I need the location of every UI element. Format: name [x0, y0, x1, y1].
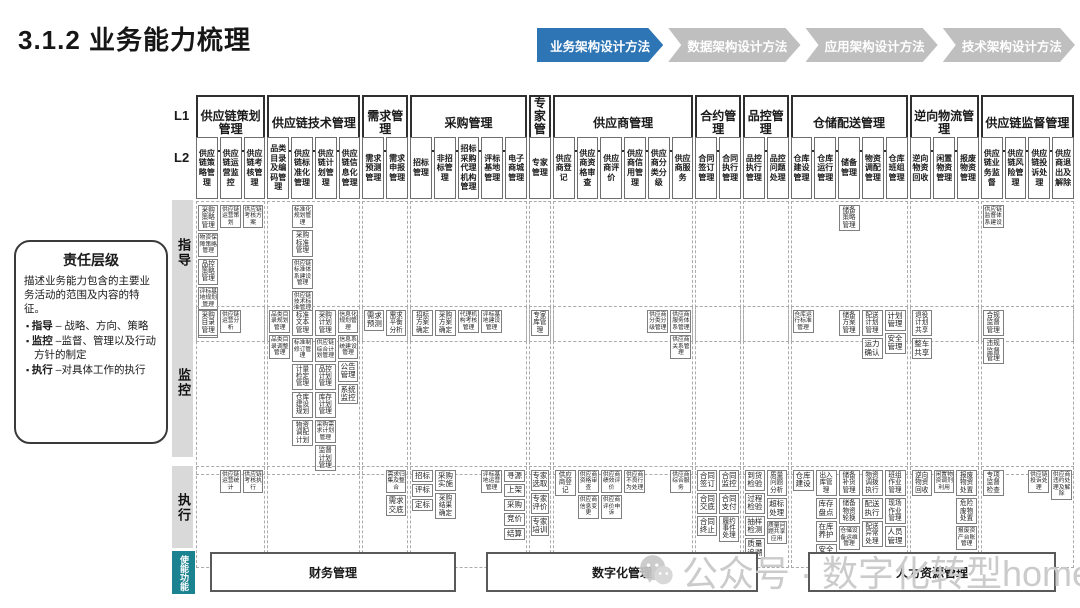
- l2-capability: 仓库建设管理: [791, 137, 813, 199]
- capability-stack: 评标基地建设管理: [481, 310, 502, 333]
- capability-cell: 上架: [504, 484, 525, 496]
- l2-capability: 品控问题处理: [767, 137, 789, 199]
- capability-stack: 退役计划共享整车共享: [912, 310, 932, 359]
- capability-cell: 采购结果确定: [435, 493, 456, 519]
- band-group-area: 合规监督管理违规监督管理: [981, 306, 1074, 475]
- capability-cell: 专家评价: [531, 493, 549, 514]
- l2-capability: 供应链信息化管理: [339, 137, 361, 199]
- capability-cell: 计量检定管理: [292, 364, 313, 390]
- capability-cell: 运力确认: [862, 338, 883, 359]
- capability-cell: 供应商绩效评价: [601, 470, 622, 493]
- capability-stack: 采购实施采购结果确定: [435, 470, 456, 519]
- capability-cell: 合规监督管理: [983, 310, 1004, 336]
- capability-cell: 供应链考核方案: [243, 205, 263, 228]
- capability-cell: 标准文本管理: [292, 310, 313, 336]
- capability-stack: 闲置物资调剂利用: [934, 470, 954, 493]
- capability-cell: 合同支付: [719, 493, 739, 514]
- capability-stack: 供应商综合服务: [670, 470, 691, 493]
- l2-capability: 供应链运营监控: [220, 137, 242, 199]
- band-group-area: 供应商分类分级管理供应商服务体系管理供应商关系管理: [553, 306, 694, 475]
- band-group-area: 招标方案确定采购方案确定代理机构考核管理评标基地建设管理: [410, 306, 527, 475]
- capability-cell: 需求预测: [364, 310, 384, 331]
- capability-stack: 质量问题分析超标处理质量问题共享应用: [767, 470, 787, 544]
- band-group-area: [743, 306, 789, 475]
- capability-cell: 供应链运营分析: [220, 310, 240, 333]
- capability-stack: 品类目录规划管理品类目录调整管理: [269, 310, 290, 359]
- capability-stack: 需求归集及整合需求交底: [386, 470, 406, 516]
- capability-cell: 违规监督管理: [983, 338, 1004, 364]
- capability-stack: 合规监督管理违规监督管理: [983, 310, 1004, 364]
- capability-cell: 配送异常处理: [862, 521, 883, 547]
- capability-cell: 供应链运营统计: [220, 470, 240, 493]
- capability-cell: 采购目录管理: [198, 310, 218, 336]
- band-guide: 采购策略管理物资保障策略管理品控策略管理评标基地规划管理仓库规划管理供应链运营策…: [196, 201, 1074, 307]
- capability-cell: 超标处理: [767, 498, 787, 519]
- capability-cell: 采购策略管理: [198, 205, 218, 231]
- capability-cell: 供应商综合服务: [670, 470, 691, 493]
- l2-capability: 招标管理: [410, 137, 432, 199]
- capability-cell: 配送执行: [862, 498, 883, 519]
- capability-cell: 评标基地运营管理: [481, 470, 502, 493]
- capability-cell: 招标: [412, 470, 433, 482]
- l2-capability: 品类目录及编码管理: [267, 137, 289, 199]
- capability-cell: 采购: [504, 499, 525, 511]
- capability-cell: 安全管理: [885, 333, 906, 354]
- capability-cell: 供应商关系管理: [670, 335, 691, 358]
- legend-bullet-monitor: 监控 –监督、管理以及行动方针的制定: [34, 335, 158, 362]
- capability-cell: 竞价: [504, 513, 525, 525]
- capability-cell: 人员管理: [885, 526, 906, 547]
- capability-cell: 供应链标准体系建设管理: [292, 259, 313, 289]
- capability-stack: 储备补货管理储备物资轮换仓储设备运维管理: [839, 470, 860, 550]
- capability-stack: 标准化规划管理采购标准管理供应链标准体系建设管理供应链技术标准管理: [292, 205, 313, 314]
- capability-stack: 供应链运营策划: [220, 205, 240, 228]
- band-group-area: 采购目录管理供应链运营分析: [196, 306, 265, 475]
- capability-cell: 质量问题共享应用: [767, 521, 787, 544]
- capability-cell: 评标基地建设管理: [481, 310, 502, 333]
- capability-stack: 仓库建设: [793, 470, 814, 491]
- capability-cell: 合同交底: [697, 493, 717, 514]
- capability-cell: 供应商信息变更: [578, 495, 599, 518]
- capability-cell: 班组作业管理: [885, 470, 906, 496]
- l2-capability: 评标基地管理: [481, 137, 503, 199]
- capability-cell: 储备物资轮换: [839, 498, 860, 524]
- l2-capability: 招标采购代理机构管理: [458, 137, 480, 199]
- l2-capability: 供应链考核管理: [244, 137, 266, 199]
- l2-capability: 逆向物资回收: [910, 137, 932, 199]
- capability-stack: 招标方案确定: [412, 310, 433, 336]
- capability-stack: 合同签订合同交底合同终止: [697, 470, 717, 536]
- l2-capability: 供应商分类分级: [648, 137, 670, 199]
- capability-cell: 需求交底: [386, 495, 406, 516]
- l2-capability: 供应链投诉处理: [1028, 137, 1050, 199]
- capability-stack: 专家选取专家评价专家培训: [531, 470, 549, 536]
- enable-functions-tab: 使能功能: [172, 551, 195, 594]
- capability-cell: 供应链综合计划管理: [315, 338, 336, 361]
- l2-capability: 专家管理: [529, 137, 551, 199]
- capability-cell: 计划管理: [885, 310, 906, 331]
- capability-cell: 品控计划管理: [315, 364, 336, 390]
- capability-stack: 采购计划管理供应链综合计划管理品控计划管理库存计划管理采购需求计划管理监督计划管…: [315, 310, 336, 471]
- capability-cell: 寻源: [504, 470, 525, 482]
- capability-stack: 合同监控合同支付履约事件处理: [719, 470, 739, 542]
- capability-stack: 评标基地运营管理: [481, 470, 502, 493]
- l2-capability: 非招标管理: [434, 137, 456, 199]
- capability-cell: 品类目录调整管理: [269, 335, 290, 358]
- capability-stack: 寻源上架采购竞价结算: [504, 470, 525, 540]
- capability-cell: 逆向物资回收: [912, 470, 932, 496]
- capability-cell: 供应链监督体系建设: [983, 205, 1004, 228]
- l2-header-row: 供应链策略管理供应链运营监控供应链考核管理品类目录及编码管理供应链标准化管理供应…: [196, 137, 1074, 199]
- l2-capability: 供应商信用管理: [624, 137, 646, 199]
- legend-bullet-guide: 指导 – 战略、方向、策略: [34, 320, 158, 334]
- capability-stack: 储备方案管理: [839, 310, 860, 336]
- capability-cell: 供应商分类分级管理: [647, 310, 668, 333]
- capability-cell: 采购实施: [435, 470, 456, 491]
- capability-stack: 供应链监督体系建设: [983, 205, 1004, 228]
- architecture-method-tabs: 业务架构设计方法 数据架构设计方法 应用架构设计方法 技术架构设计方法: [537, 28, 1075, 62]
- l2-capability: 报废物资管理: [957, 137, 979, 199]
- capability-cell: 质量问题分析: [767, 470, 787, 496]
- capability-stack: 专家库管理: [531, 310, 549, 336]
- capability-cell: 专家选取: [531, 470, 549, 491]
- band-label-execute: 执行: [172, 483, 193, 533]
- legend-title: 责任层级: [24, 250, 158, 270]
- level-2-label: L2: [174, 150, 194, 165]
- l2-capability: 品控执行管理: [743, 137, 765, 199]
- capability-cell: 合同终止: [697, 516, 717, 537]
- capability-cell: 评标: [412, 484, 433, 496]
- capability-stack: 采购方案确定: [435, 310, 456, 336]
- capability-cell: 合同监控: [719, 470, 739, 491]
- capability-cell: 仓库运行标准管理: [793, 310, 814, 333]
- capability-cell: 退役计划共享: [912, 310, 932, 336]
- capability-stack: 供应商资格审查供应商信息变更: [578, 470, 599, 519]
- capability-stack: 招标评标定标: [412, 470, 433, 511]
- capability-stack: 出入库管理库存盘点在库养护安全巡检: [816, 470, 837, 564]
- capability-cell: 到货检验: [745, 470, 765, 491]
- band-group-area: 专家库管理: [529, 306, 551, 475]
- capability-cell: 供应链运营策划: [220, 205, 240, 228]
- capability-cell: 供应商评价申诉: [601, 495, 622, 518]
- l2-capability: 供应商退出及解除: [1052, 137, 1074, 199]
- capability-cell: 品类目录规划管理: [269, 310, 290, 333]
- capability-cell: 系统监控: [338, 384, 359, 405]
- capability-map: 供应链策划管理供应链技术管理需求管理采购管理专家管理供应商管理合约管理品控管理仓…: [196, 95, 1074, 546]
- capability-cell: 报废资产台账管理: [956, 526, 976, 549]
- band-group-area: 仓库运行标准管理储备方案管理配送计划管理运力确认计划管理安全管理: [791, 306, 908, 475]
- l2-capability: 仓库运行管理: [814, 137, 836, 199]
- capability-cell: 需求平衡分析: [386, 310, 406, 336]
- capability-cell: 品控策略管理: [198, 259, 218, 285]
- capability-cell: 供应商资格审查: [578, 470, 599, 493]
- capability-cell: 物资调拨执行: [862, 470, 883, 496]
- capability-cell: 供应商不良行为处理: [624, 470, 645, 493]
- level-1-label: L1: [174, 108, 194, 123]
- l2-capability: 合同签订管理: [695, 137, 717, 199]
- band-group-area: 品类目录规划管理品类目录调整管理标准文本管理标准制修订管理计量检定管理仓库建设规…: [267, 306, 360, 475]
- capability-cell: 专项监督检查: [983, 470, 1004, 496]
- capability-stack: 供应链考核方案: [243, 205, 263, 228]
- capability-cell: 现场作业管理: [885, 498, 906, 524]
- capability-stack: 到货检验过程检验抽样检测质量追溯: [745, 470, 765, 559]
- band-group-area: 退役计划共享整车共享: [910, 306, 979, 475]
- l2-capability: 电子商城管理: [505, 137, 527, 199]
- capability-cell: 整车共享: [912, 338, 932, 359]
- capability-cell: 信息化规划管理: [338, 310, 359, 333]
- l2-capability: 供应链风险管理: [1005, 137, 1027, 199]
- capability-stack: 计划管理安全管理: [885, 310, 906, 354]
- capability-cell: 库存计划管理: [315, 392, 336, 418]
- capability-cell: 供应链考核执行: [243, 470, 263, 493]
- band-group-area: 需求预测需求平衡分析: [362, 306, 408, 475]
- capability-cell: 定标: [412, 499, 433, 511]
- page-title: 3.1.2 业务能力梳理: [18, 20, 251, 57]
- capability-cell: 供应商服务体系管理: [670, 310, 691, 333]
- capability-stack: 代理机构考核管理: [458, 310, 479, 333]
- capability-cell: 采购方案确定: [435, 310, 456, 336]
- capability-stack: 供应商绩效评价供应商评价申诉: [601, 470, 622, 519]
- tab-technology-architecture[interactable]: 技术架构设计方法: [943, 28, 1075, 62]
- capability-stack: 标准文本管理标准制修订管理计量检定管理仓库建设规划物资调配计划: [292, 310, 313, 446]
- capability-stack: 物资调拨执行配送执行配送异常处理: [862, 470, 883, 547]
- enable-box-finance: 财务管理: [210, 552, 456, 592]
- capability-cell: 仓库建设规划: [292, 392, 313, 418]
- responsibility-legend: 责任层级 描述业务能力包含的主要业务活动的范围及内容的特征。 指导 – 战略、方…: [14, 240, 168, 444]
- capability-cell: 仓库建设: [793, 470, 814, 491]
- capability-cell: 需求归集及整合: [386, 470, 406, 493]
- capability-stack: 需求预测: [364, 310, 384, 331]
- band-monitor: 采购目录管理供应链运营分析品类目录规划管理品类目录调整管理标准文本管理标准制修订…: [196, 306, 1074, 456]
- capability-stack: 报废物资处置危险废物处置报废资产台账管理: [956, 470, 976, 550]
- capability-cell: 信息系统建设管理: [338, 335, 359, 358]
- slide: 3.1.2 业务能力梳理 业务架构设计方法 数据架构设计方法 应用架构设计方法 …: [0, 0, 1080, 608]
- capability-cell: 配送计划管理: [862, 310, 883, 336]
- capability-stack: 供应商违约处理及解除: [1051, 470, 1072, 500]
- capability-stack: 供应商不良行为处理: [624, 470, 645, 493]
- l1-header-row: 供应链策划管理供应链技术管理需求管理采购管理专家管理供应商管理合约管理品控管理仓…: [196, 95, 1074, 135]
- capability-cell: 标准制修订管理: [292, 338, 313, 361]
- enable-box-hr: 人力资源管理: [808, 552, 1056, 592]
- capability-cell: 供应商违约处理及解除: [1051, 470, 1072, 500]
- capability-cell: 履约事件处理: [719, 516, 739, 542]
- l2-capability: 供应商登记: [553, 137, 575, 199]
- capability-cell: 仓储设备运维管理: [839, 526, 860, 549]
- capability-stack: 专项监督检查: [983, 470, 1004, 496]
- band-group-area: [695, 306, 741, 475]
- enable-box-digital: 数字化管理: [486, 552, 758, 592]
- capability-cell: 合同签订: [697, 470, 717, 491]
- band-execute: 供应链运营统计供应链考核执行需求归集及整合需求交底招标评标定标采购实施采购结果确…: [196, 466, 1074, 546]
- l2-capability: 供应链计划管理: [315, 137, 337, 199]
- capability-cell: 报废物资处置: [956, 470, 976, 496]
- capability-stack: 供应链投诉处理: [1028, 470, 1049, 493]
- capability-cell: 储备策略管理: [839, 205, 860, 231]
- tab-data-architecture[interactable]: 数据架构设计方法: [668, 28, 800, 62]
- capability-cell: 过程检验: [745, 493, 765, 514]
- l2-capability: 需求预测管理: [362, 137, 384, 199]
- capability-stack: 班组作业管理现场作业管理人员管理: [885, 470, 906, 547]
- capability-cell: 结算: [504, 528, 525, 540]
- capability-cell: 物资调配计划: [292, 420, 313, 446]
- capability-cell: 储备方案管理: [839, 310, 860, 336]
- capability-cell: 物资保障策略管理: [198, 233, 218, 256]
- l2-capability: 储备管理: [838, 137, 860, 199]
- tab-business-architecture[interactable]: 业务架构设计方法: [537, 28, 663, 62]
- capability-cell: 供应链投诉处理: [1028, 470, 1049, 493]
- capability-cell: 采购需求计划管理: [315, 420, 336, 443]
- legend-bullet-execute: 执行 –对具体工作的执行: [34, 364, 158, 378]
- l2-capability: 供应链标准化管理: [291, 137, 313, 199]
- capability-cell: 标准化规划管理: [292, 205, 313, 228]
- l2-capability: 需求申报管理: [386, 137, 408, 199]
- capability-cell: 代理机构考核管理: [458, 310, 479, 333]
- capability-cell: 闲置物资调剂利用: [934, 470, 954, 493]
- capability-cell: 采购标准管理: [292, 230, 313, 256]
- legend-bullets: 指导 – 战略、方向、策略 监控 –监督、管理以及行动方针的制定 执行 –对具体…: [24, 320, 158, 379]
- capability-cell: 出入库管理: [816, 470, 837, 496]
- capability-cell: 库存盘点: [816, 498, 837, 519]
- capability-stack: 供应链运营统计: [220, 470, 240, 493]
- capability-stack: 配送计划管理运力确认: [862, 310, 883, 359]
- capability-stack: 需求平衡分析: [386, 310, 406, 336]
- capability-stack: 供应链运营分析: [220, 310, 240, 333]
- l2-capability: 供应链策略管理: [196, 137, 218, 199]
- capability-cell: 公告管理: [338, 361, 359, 382]
- capability-stack: 供应商服务体系管理供应商关系管理: [670, 310, 691, 359]
- capability-cell: 招标方案确定: [412, 310, 433, 336]
- capability-cell: 专家库管理: [531, 310, 549, 336]
- l2-capability: 供应商资格审查: [577, 137, 599, 199]
- capability-stack: 仓库运行标准管理: [793, 310, 814, 333]
- capability-cell: 采购计划管理: [315, 310, 336, 336]
- l2-capability: 闲置物资管理: [933, 137, 955, 199]
- capability-stack: 供应商分类分级管理: [647, 310, 668, 333]
- capability-stack: 供应商登记: [555, 470, 576, 496]
- band-label-monitor: 监控: [172, 358, 193, 408]
- capability-cell: 供应商登记: [555, 470, 576, 496]
- legend-description: 描述业务能力包含的主要业务活动的范围及内容的特征。: [24, 274, 158, 317]
- capability-cell: 危险废物处置: [956, 498, 976, 524]
- capability-cell: 在库养护: [816, 521, 837, 542]
- l2-capability: 供应商服务: [672, 137, 694, 199]
- l2-capability: 合同执行管理: [719, 137, 741, 199]
- capability-stack: 储备策略管理: [839, 205, 860, 231]
- tab-application-architecture[interactable]: 应用架构设计方法: [806, 28, 938, 62]
- l2-capability: 物资调配管理: [862, 137, 884, 199]
- capability-stack: 信息化规划管理信息系统建设管理公告管理系统监控: [338, 310, 359, 404]
- l2-capability: 供应链业务监督: [981, 137, 1003, 199]
- capability-stack: 供应链考核执行: [243, 470, 263, 493]
- capability-stack: 采购目录管理: [198, 310, 218, 336]
- band-label-guide: 指导: [172, 228, 193, 278]
- capability-cell: 储备补货管理: [839, 470, 860, 496]
- capability-cell: 抽样检测: [745, 516, 765, 537]
- l2-capability: 供应商评价: [600, 137, 622, 199]
- l2-capability: 仓库班组管理: [886, 137, 908, 199]
- capability-cell: 专家培训: [531, 516, 549, 537]
- capability-stack: 逆向物资回收: [912, 470, 932, 496]
